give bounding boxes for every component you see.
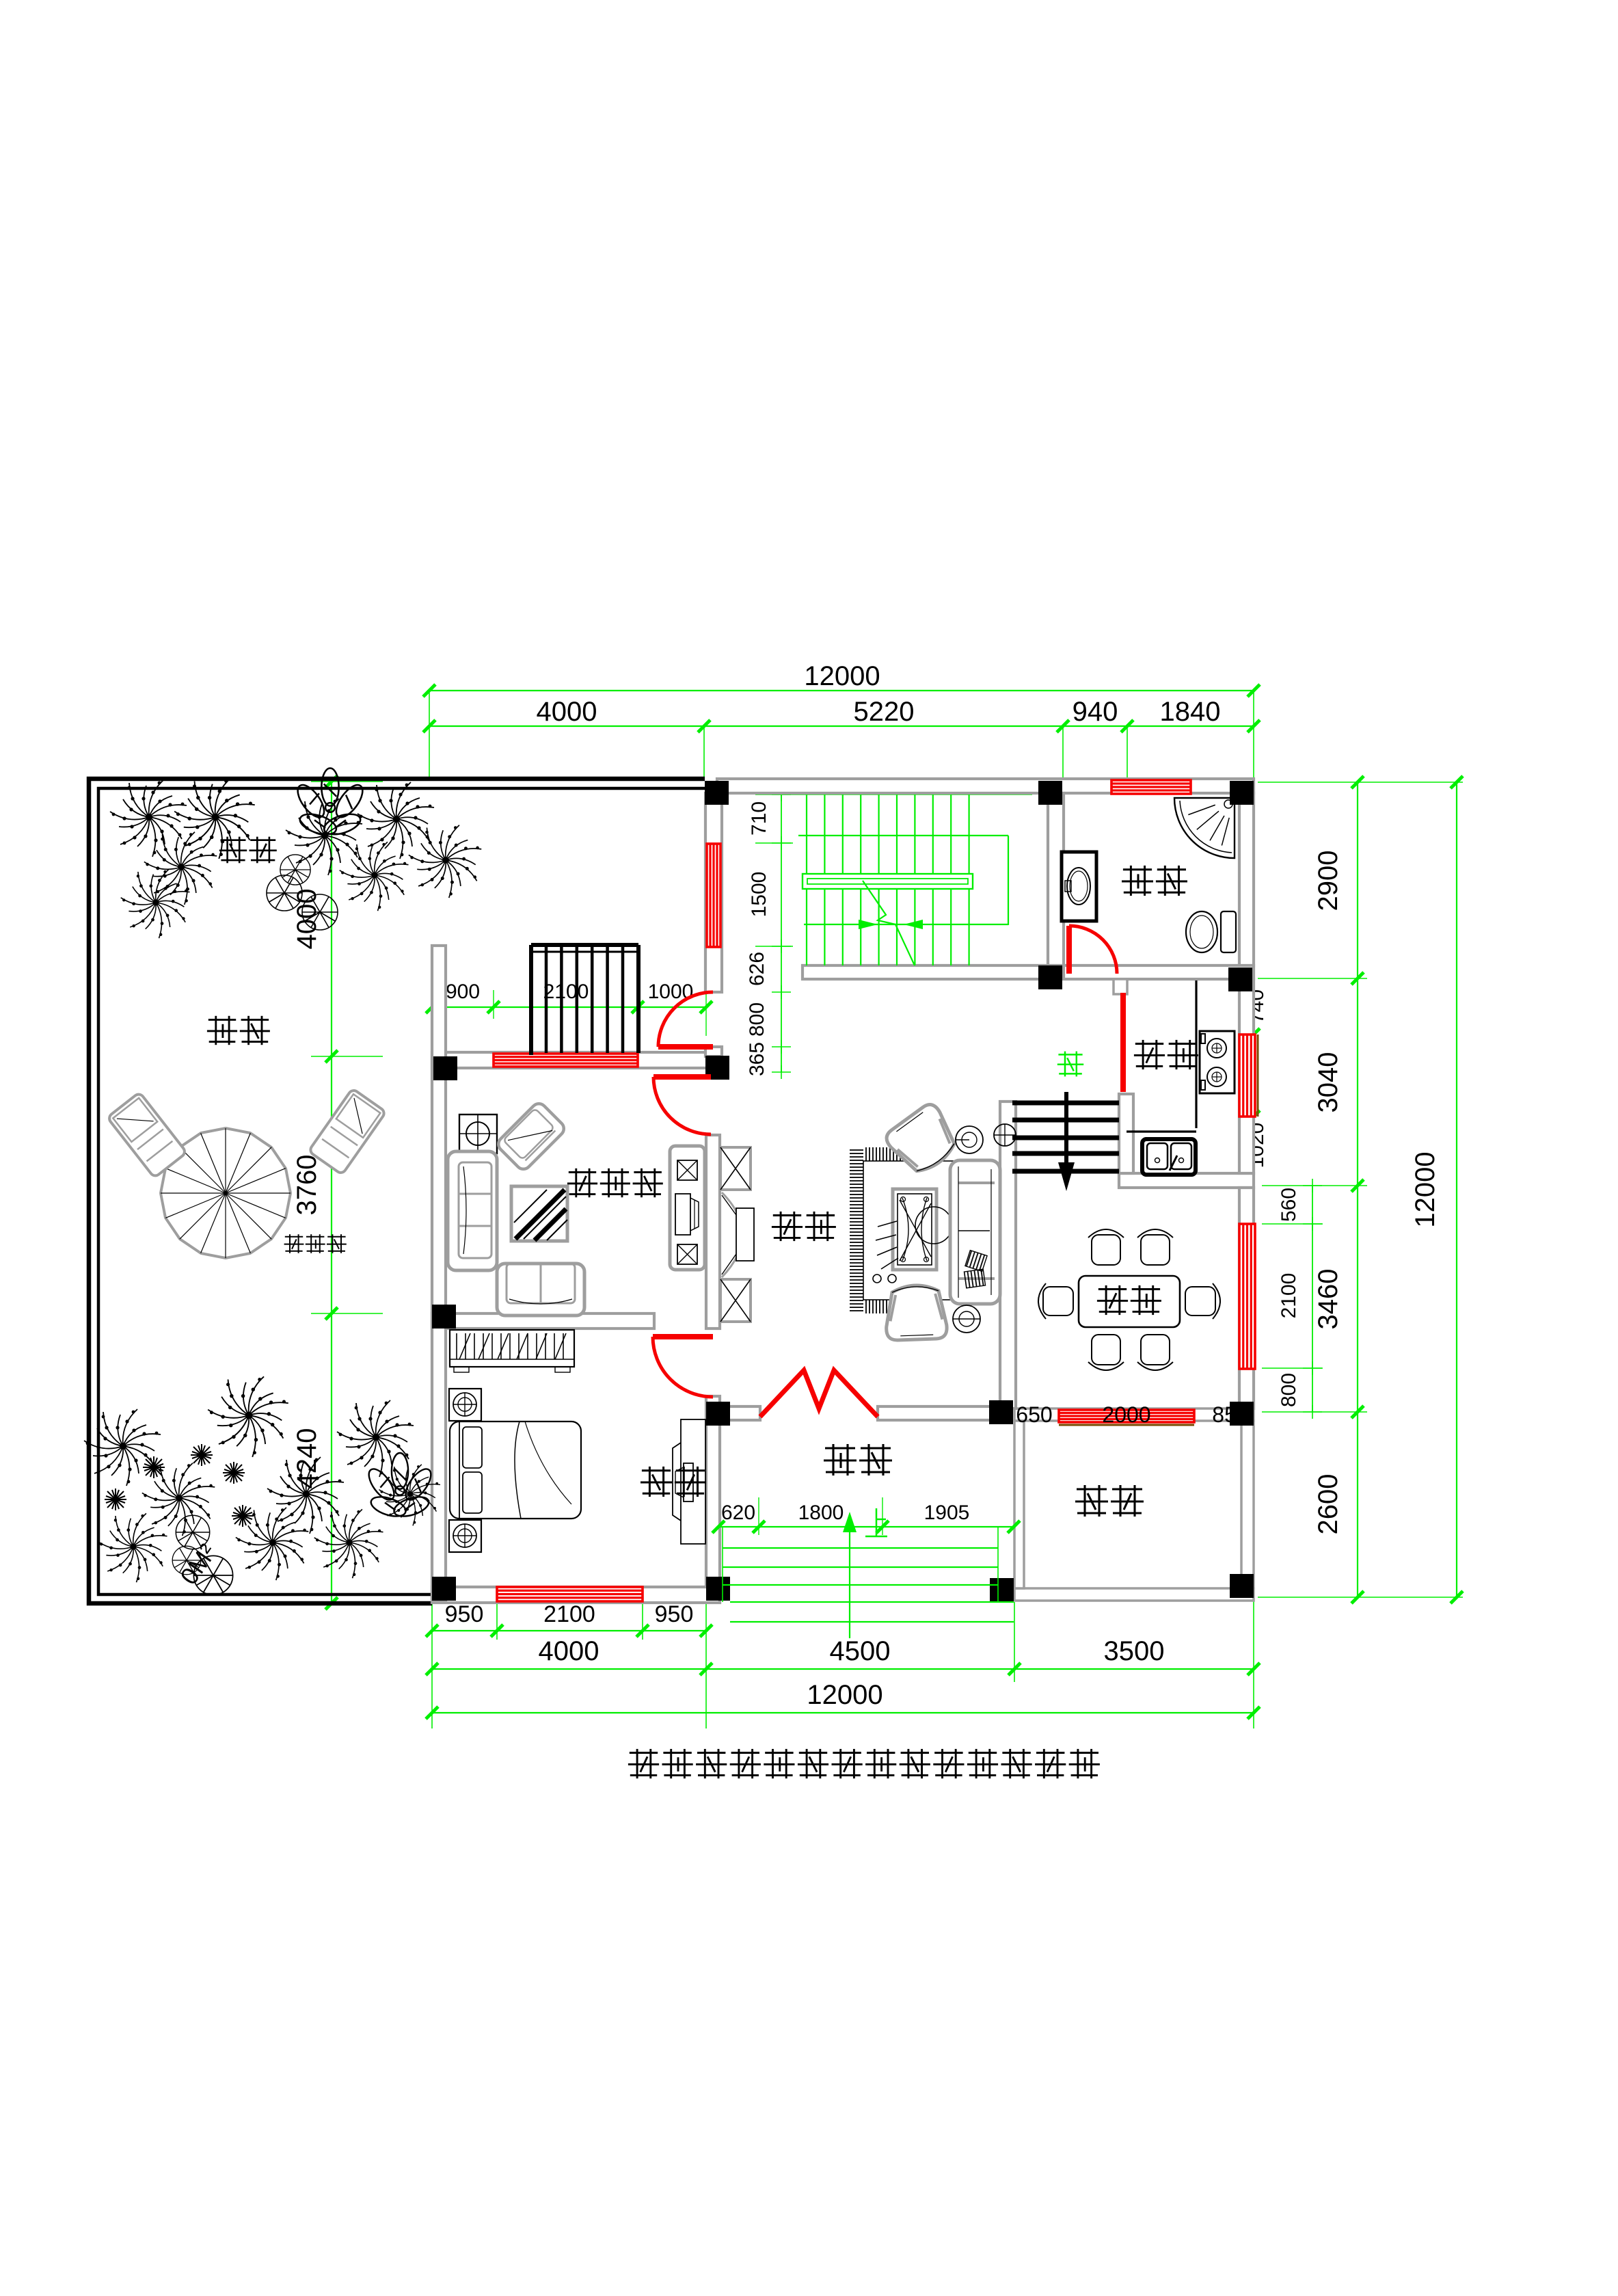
svg-text:710: 710 bbox=[748, 801, 770, 836]
svg-text:3040: 3040 bbox=[1313, 1052, 1343, 1113]
svg-text:365: 365 bbox=[746, 1042, 768, 1076]
svg-text:4000: 4000 bbox=[539, 1636, 599, 1666]
svg-text:5220: 5220 bbox=[854, 697, 915, 727]
svg-text:1500: 1500 bbox=[748, 872, 770, 918]
svg-text:620: 620 bbox=[721, 1501, 755, 1524]
svg-text:2100: 2100 bbox=[543, 980, 589, 1003]
svg-text:2100: 2100 bbox=[1278, 1273, 1300, 1319]
svg-text:800: 800 bbox=[1278, 1373, 1300, 1407]
svg-text:3760: 3760 bbox=[292, 1155, 322, 1216]
svg-text:1840: 1840 bbox=[1160, 697, 1221, 727]
svg-text:4000: 4000 bbox=[292, 889, 322, 950]
svg-text:850: 850 bbox=[1212, 1402, 1248, 1427]
svg-text:1905: 1905 bbox=[924, 1501, 970, 1524]
svg-text:3460: 3460 bbox=[1313, 1269, 1343, 1330]
svg-text:12000: 12000 bbox=[807, 1680, 882, 1710]
svg-text:2000: 2000 bbox=[1102, 1402, 1150, 1427]
svg-text:12000: 12000 bbox=[804, 661, 880, 691]
svg-text:650: 650 bbox=[1016, 1402, 1052, 1427]
svg-text:4000: 4000 bbox=[537, 697, 597, 727]
svg-text:626: 626 bbox=[746, 952, 768, 986]
svg-text:950: 950 bbox=[655, 1601, 694, 1627]
svg-text:2100: 2100 bbox=[543, 1601, 595, 1627]
svg-text:2600: 2600 bbox=[1313, 1474, 1343, 1535]
svg-text:3500: 3500 bbox=[1104, 1636, 1165, 1666]
svg-text:2900: 2900 bbox=[1313, 851, 1343, 911]
svg-text:1800: 1800 bbox=[798, 1501, 844, 1524]
svg-text:940: 940 bbox=[1073, 697, 1118, 727]
svg-text:900: 900 bbox=[446, 980, 480, 1003]
svg-text:12000: 12000 bbox=[1410, 1151, 1440, 1227]
svg-text:800: 800 bbox=[746, 1002, 768, 1037]
svg-text:950: 950 bbox=[445, 1601, 484, 1627]
svg-text:4500: 4500 bbox=[830, 1636, 891, 1666]
svg-text:560: 560 bbox=[1278, 1188, 1300, 1222]
